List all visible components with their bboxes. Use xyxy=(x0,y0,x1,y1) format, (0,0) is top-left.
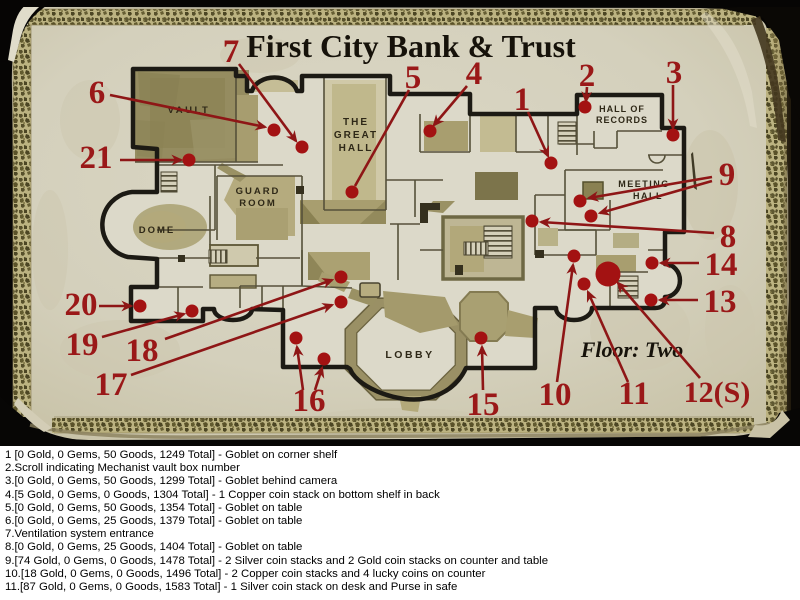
svg-text:14: 14 xyxy=(705,247,738,283)
svg-text:LOBBY: LOBBY xyxy=(385,349,434,361)
svg-text:13: 13 xyxy=(704,284,737,320)
svg-text:11: 11 xyxy=(618,376,649,412)
svg-text:21: 21 xyxy=(80,140,113,176)
svg-text:HALL OF: HALL OF xyxy=(599,104,645,114)
svg-text:DOME: DOME xyxy=(139,225,176,236)
svg-text:1: 1 xyxy=(514,82,531,118)
svg-text:12(S): 12(S) xyxy=(684,376,751,409)
svg-text:16: 16 xyxy=(293,383,326,419)
svg-text:4: 4 xyxy=(466,56,483,92)
svg-text:5: 5 xyxy=(405,60,422,96)
svg-text:6: 6 xyxy=(89,75,106,111)
svg-text:HALL: HALL xyxy=(339,143,374,154)
svg-text:9: 9 xyxy=(719,157,736,193)
svg-text:10: 10 xyxy=(539,377,572,413)
svg-text:2: 2 xyxy=(579,58,596,94)
svg-text:ROOM: ROOM xyxy=(239,198,277,209)
svg-text:GREAT: GREAT xyxy=(334,130,378,141)
svg-text:THE: THE xyxy=(343,117,369,128)
svg-text:19: 19 xyxy=(66,327,99,363)
svg-text:GUARD: GUARD xyxy=(236,186,281,197)
svg-text:RECORDS: RECORDS xyxy=(596,115,648,125)
svg-text:3: 3 xyxy=(666,55,683,91)
svg-text:20: 20 xyxy=(65,287,98,323)
svg-text:15: 15 xyxy=(467,387,500,423)
svg-text:18: 18 xyxy=(126,333,159,369)
svg-text:First City Bank & Trust: First City Bank & Trust xyxy=(246,28,576,64)
svg-text:17: 17 xyxy=(95,367,128,403)
svg-text:7: 7 xyxy=(223,34,240,70)
